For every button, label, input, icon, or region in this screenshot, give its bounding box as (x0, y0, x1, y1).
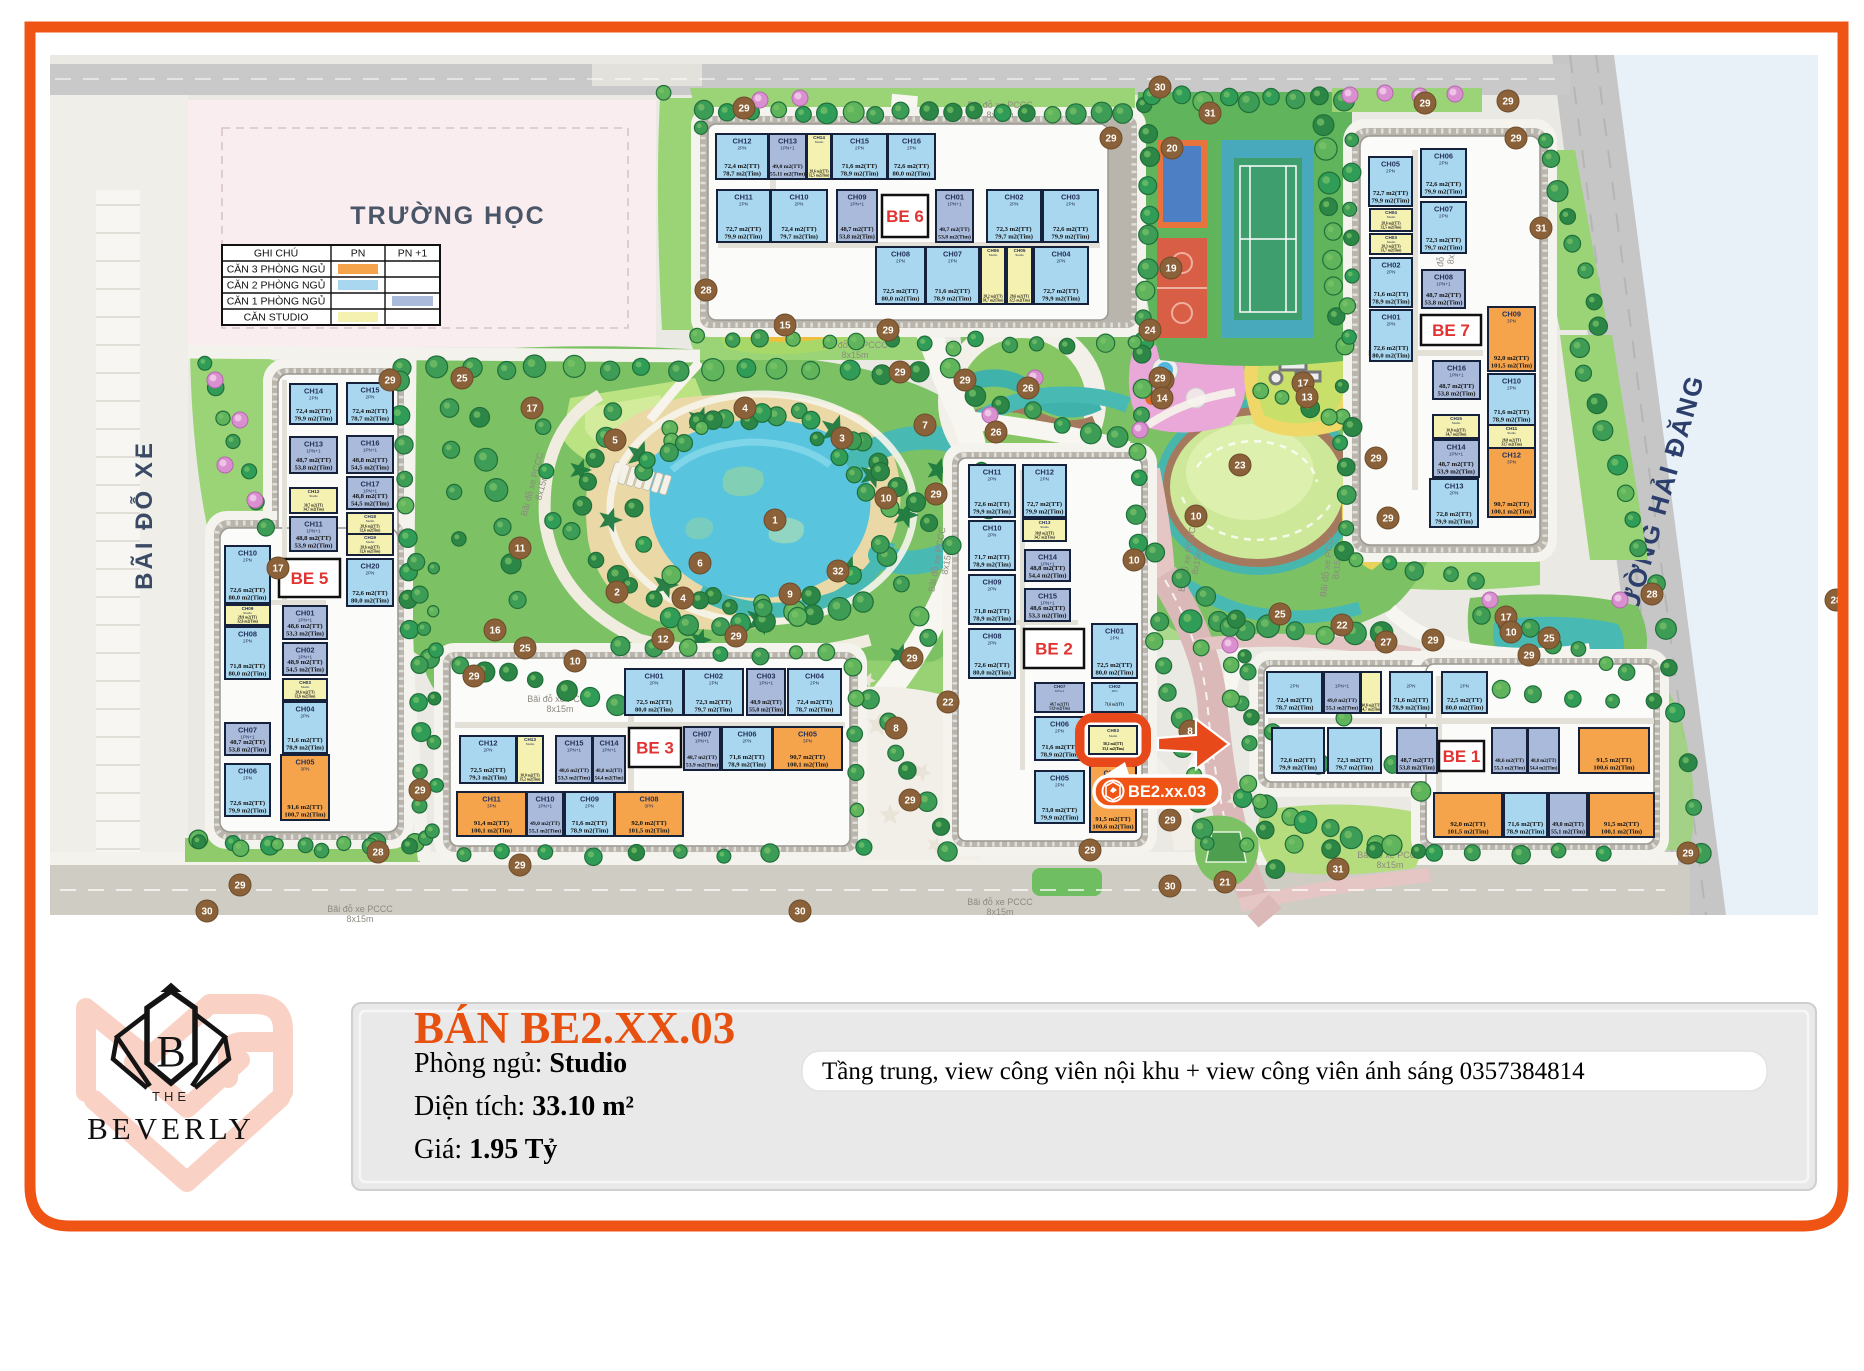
svg-text:78,9 m2(Tim): 78,9 m2(Tim) (973, 562, 1011, 569)
svg-text:72,6 m2(TT): 72,6 m2(TT) (230, 800, 265, 807)
svg-text:CH01: CH01 (1105, 627, 1124, 636)
svg-text:72,7 m2(TT): 72,7 m2(TT) (1027, 501, 1062, 508)
svg-text:CH12: CH12 (479, 739, 498, 748)
svg-text:21: 21 (1219, 878, 1231, 889)
svg-text:CH04: CH04 (1052, 250, 1072, 259)
svg-text:55,0 m2(Tim): 55,0 m2(Tim) (749, 707, 783, 714)
svg-text:1PN+1: 1PN+1 (306, 449, 321, 454)
svg-text:4: 4 (680, 594, 686, 605)
svg-text:79,7 m2(Tim): 79,7 m2(Tim) (695, 707, 733, 714)
svg-text:12: 12 (657, 635, 669, 646)
svg-text:80,0 m2(Tim): 80,0 m2(Tim) (229, 595, 267, 602)
svg-text:71,8 m2(TT): 71,8 m2(TT) (974, 608, 1009, 615)
svg-text:72,8 m2(TT): 72,8 m2(TT) (1436, 511, 1471, 518)
svg-text:71,8 m2(TT): 71,8 m2(TT) (230, 663, 265, 670)
svg-text:CH08: CH08 (983, 632, 1002, 641)
svg-text:72,4 m2(TT): 72,4 m2(TT) (1277, 697, 1312, 704)
svg-text:53,8 m2(Tim): 53,8 m2(Tim) (229, 747, 267, 754)
svg-text:29: 29 (959, 376, 971, 387)
svg-text:80,0 m2(Tim): 80,0 m2(Tim) (351, 598, 389, 605)
svg-text:53,8 m2(Tim): 53,8 m2(Tim) (839, 234, 875, 241)
svg-text:Studio: Studio (1452, 421, 1461, 425)
svg-text:CH08: CH08 (1434, 273, 1453, 282)
svg-text:33,1 m2(Tim): 33,1 m2(Tim) (1102, 747, 1125, 751)
svg-text:Studio: Studio (815, 140, 824, 144)
svg-text:27: 27 (1380, 638, 1392, 649)
svg-text:35,2 m2(Tim): 35,2 m2(Tim) (520, 778, 541, 782)
svg-text:53,9 m2(Tim): 53,9 m2(Tim) (686, 762, 718, 769)
svg-text:10: 10 (569, 657, 581, 668)
svg-text:8x15m: 8x15m (841, 350, 868, 360)
svg-text:53,3 m2(Tim): 53,3 m2(Tim) (1029, 613, 1067, 620)
svg-text:72,3 m2(TT): 72,3 m2(TT) (996, 226, 1031, 233)
svg-text:78,7 m2(Tim): 78,7 m2(Tim) (723, 171, 761, 178)
svg-text:CH10: CH10 (983, 524, 1002, 533)
svg-text:80,0 m2(Tim): 80,0 m2(Tim) (1446, 705, 1484, 712)
svg-text:CH16: CH16 (1447, 364, 1466, 373)
svg-text:2PN: 2PN (896, 259, 905, 264)
svg-text:79,9 m2(Tim): 79,9 m2(Tim) (1041, 815, 1079, 822)
svg-text:48,7 m2(TT): 48,7 m2(TT) (939, 226, 969, 233)
svg-text:2PN: 2PN (1010, 202, 1019, 207)
svg-text:80,0 m2(Tim): 80,0 m2(Tim) (882, 296, 920, 303)
svg-text:BE 3: BE 3 (636, 739, 674, 758)
svg-text:Studio: Studio (366, 540, 375, 544)
svg-text:CH09: CH09 (580, 795, 599, 804)
svg-text:7: 7 (922, 421, 928, 432)
svg-text:72,5 m2(TT): 72,5 m2(TT) (636, 699, 671, 706)
svg-text:79,3 m2(Tim): 79,3 m2(Tim) (469, 775, 507, 782)
svg-text:CH15: CH15 (565, 739, 584, 748)
svg-text:CH11: CH11 (482, 795, 501, 804)
svg-text:28: 28 (372, 848, 384, 859)
svg-text:TRƯỜNG HỌC: TRƯỜNG HỌC (350, 200, 545, 230)
svg-text:BE 1: BE 1 (1443, 747, 1481, 766)
svg-text:13: 13 (1301, 393, 1313, 404)
svg-text:48,7 m2(TT): 48,7 m2(TT) (1401, 757, 1434, 764)
svg-text:1PN+1: 1PN+1 (298, 618, 313, 623)
svg-text:48,8 m2(TT): 48,8 m2(TT) (296, 535, 331, 542)
svg-text:CH01: CH01 (645, 672, 664, 681)
svg-text:71,6 m2(TT): 71,6 m2(TT) (1042, 744, 1077, 751)
svg-text:Bãi đỗ xe PCCC: Bãi đỗ xe PCCC (327, 904, 393, 914)
svg-text:29: 29 (1382, 514, 1394, 525)
svg-text:CH17: CH17 (361, 480, 380, 489)
svg-text:2PN: 2PN (988, 641, 997, 646)
svg-text:1PN+1: 1PN+1 (538, 804, 553, 809)
svg-text:1PN+1: 1PN+1 (780, 146, 795, 151)
svg-text:29: 29 (1370, 454, 1382, 465)
svg-text:CH02: CH02 (296, 646, 315, 655)
svg-text:71,6 m2(TT): 71,6 m2(TT) (572, 820, 607, 827)
svg-text:CH13: CH13 (778, 137, 797, 146)
svg-text:54,5 m2(Tim): 54,5 m2(Tim) (351, 465, 389, 472)
svg-text:29: 29 (1682, 849, 1694, 860)
svg-text:CH11: CH11 (734, 193, 753, 202)
svg-text:3: 3 (839, 434, 845, 445)
svg-text:78,9 m2(Tim): 78,9 m2(Tim) (1041, 752, 1079, 759)
svg-text:17: 17 (272, 564, 284, 575)
svg-text:48,7 m2(TT): 48,7 m2(TT) (841, 226, 874, 233)
svg-text:2PN: 2PN (1460, 684, 1469, 689)
svg-text:29: 29 (234, 881, 246, 892)
svg-text:78,9 m2(Tim): 78,9 m2(Tim) (1507, 829, 1545, 836)
svg-text:71,6 m2(TT): 71,6 m2(TT) (842, 163, 877, 170)
svg-text:32,5 m2(Tim): 32,5 m2(Tim) (1009, 299, 1030, 303)
svg-text:Studio: Studio (301, 685, 310, 689)
svg-text:CH10: CH10 (790, 193, 809, 202)
svg-text:CH03: CH03 (1107, 728, 1119, 733)
svg-text:72,5 m2(TT): 72,5 m2(TT) (883, 288, 918, 295)
svg-text:Studio: Studio (1015, 253, 1024, 257)
svg-text:2PN: 2PN (484, 748, 493, 753)
svg-text:49,0 m2(TT): 49,0 m2(TT) (1552, 821, 1583, 828)
svg-text:CH07: CH07 (238, 726, 257, 735)
svg-text:34,7 m2(Tim): 34,7 m2(Tim) (1034, 536, 1055, 540)
svg-text:48,8 m2(TT): 48,8 m2(TT) (1030, 565, 1065, 572)
svg-text:78,7 m2(Tim): 78,7 m2(Tim) (796, 707, 834, 714)
svg-text:80,0 m2(Tim): 80,0 m2(Tim) (635, 707, 673, 714)
svg-text:73,0 m2(TT): 73,0 m2(TT) (1042, 807, 1077, 814)
svg-text:2PN: 2PN (1439, 214, 1448, 219)
svg-text:Studio: Studio (309, 494, 318, 498)
svg-text:101,5 m2(Tim): 101,5 m2(Tim) (628, 828, 669, 835)
svg-text:29: 29 (1419, 99, 1431, 110)
svg-text:72,4 m2(TT): 72,4 m2(TT) (296, 408, 331, 415)
svg-text:72,4 m2(TT): 72,4 m2(TT) (781, 226, 816, 233)
svg-text:72,5 m2(TT): 72,5 m2(TT) (470, 767, 505, 774)
svg-text:32,5 m2(Tim): 32,5 m2(Tim) (809, 174, 830, 178)
svg-text:CH01: CH01 (296, 609, 315, 618)
svg-text:CH07: CH07 (943, 250, 962, 259)
svg-text:79,7 m2(Tim): 79,7 m2(Tim) (1336, 765, 1374, 772)
svg-text:Studio: Studio (1387, 215, 1396, 219)
svg-text:2PN: 2PN (1450, 491, 1459, 496)
svg-text:2PN: 2PN (795, 202, 804, 207)
svg-text:Studio: Studio (1109, 734, 1118, 738)
svg-text:1PN+1: 1PN+1 (363, 448, 378, 453)
svg-text:71,6 m2(TT): 71,6 m2(TT) (1105, 703, 1125, 707)
svg-text:32,5 m2(Tim): 32,5 m2(Tim) (1381, 226, 1402, 230)
svg-text:71,6 m2(TT): 71,6 m2(TT) (1494, 409, 1529, 416)
svg-text:80,0 m2(Tim): 80,0 m2(Tim) (1096, 670, 1134, 677)
svg-text:29: 29 (882, 326, 894, 337)
svg-text:54,4 m2(Tim): 54,4 m2(Tim) (1029, 573, 1067, 580)
svg-text:100,6 m2(Tim): 100,6 m2(Tim) (1092, 824, 1133, 831)
svg-text:CH10: CH10 (536, 795, 555, 804)
svg-text:CH06: CH06 (738, 730, 757, 739)
svg-text:33,7 m2(Tim): 33,7 m2(Tim) (1501, 443, 1522, 447)
svg-text:30,2 m2(TT): 30,2 m2(TT) (1103, 742, 1124, 746)
svg-text:2PN: 2PN (1387, 322, 1396, 327)
svg-text:3PN: 3PN (803, 739, 812, 744)
svg-text:16: 16 (489, 626, 501, 637)
svg-text:THE: THE (152, 1089, 190, 1104)
svg-text:BE 6: BE 6 (886, 207, 924, 226)
svg-text:CH04: CH04 (805, 672, 825, 681)
svg-text:80,0 m2(Tim): 80,0 m2(Tim) (893, 171, 931, 178)
svg-text:2: 2 (614, 588, 620, 599)
svg-text:53,9 m2(Tim): 53,9 m2(Tim) (295, 543, 333, 550)
svg-text:48,8 m2(TT): 48,8 m2(TT) (352, 457, 387, 464)
svg-text:2PN: 2PN (1407, 684, 1416, 689)
svg-text:28: 28 (1646, 590, 1658, 601)
svg-text:17: 17 (526, 404, 538, 415)
svg-text:CH11: CH11 (304, 520, 323, 529)
svg-text:8: 8 (893, 724, 899, 735)
svg-text:1PN+1: 1PN+1 (695, 739, 710, 744)
svg-text:72,7 m2(TT): 72,7 m2(TT) (1373, 190, 1408, 197)
svg-text:72,6 m2(TT): 72,6 m2(TT) (352, 590, 387, 597)
svg-text:55,1 m2(Tim): 55,1 m2(Tim) (529, 828, 561, 835)
svg-text:53,8 m2(Tim): 53,8 m2(Tim) (1399, 765, 1435, 772)
svg-text:BÃI ĐỖ XE: BÃI ĐỖ XE (129, 440, 158, 590)
svg-text:1PN+1: 1PN+1 (306, 529, 321, 534)
svg-text:8x15m: 8x15m (986, 907, 1013, 917)
svg-text:72,6 m2(TT): 72,6 m2(TT) (230, 587, 265, 594)
svg-text:CH06: CH06 (1434, 152, 1453, 161)
svg-text:CH13: CH13 (1445, 482, 1464, 491)
svg-text:2PN: 2PN (1057, 259, 1066, 264)
svg-text:Phòng ngủ: Studio: Phòng ngủ: Studio (414, 1048, 627, 1079)
svg-text:2PN: 2PN (1290, 684, 1299, 689)
svg-text:53,8 m2(Tim): 53,8 m2(Tim) (295, 465, 333, 472)
svg-text:CH14: CH14 (304, 387, 324, 396)
svg-text:54,5 m2(Tim): 54,5 m2(Tim) (351, 501, 389, 508)
svg-text:78,9 m2(Tim): 78,9 m2(Tim) (934, 296, 972, 303)
svg-text:CH12: CH12 (1502, 451, 1521, 460)
svg-text:29: 29 (906, 654, 918, 665)
svg-text:29: 29 (930, 490, 942, 501)
svg-text:Studio: Studio (989, 253, 998, 257)
svg-text:72,6 m2(TT): 72,6 m2(TT) (974, 662, 1009, 669)
svg-text:79,9 m2(Tim): 79,9 m2(Tim) (725, 234, 763, 241)
svg-text:29: 29 (1510, 134, 1522, 145)
svg-text:CH03: CH03 (1061, 193, 1080, 202)
svg-text:10: 10 (880, 494, 892, 505)
svg-text:71,7 m2(TT): 71,7 m2(TT) (974, 554, 1009, 561)
svg-text:29: 29 (1154, 374, 1166, 385)
svg-text:78,9 m2(Tim): 78,9 m2(Tim) (841, 171, 879, 178)
svg-text:CH09: CH09 (848, 193, 867, 202)
svg-text:100,1 m2(Tim): 100,1 m2(Tim) (471, 828, 512, 835)
svg-text:2PN: 2PN (738, 146, 747, 151)
svg-text:14: 14 (1156, 394, 1168, 405)
svg-text:79,9 m2(Tim): 79,9 m2(Tim) (295, 416, 333, 423)
svg-text:CH12: CH12 (733, 137, 752, 146)
svg-text:79,9 m2(Tim): 79,9 m2(Tim) (1042, 296, 1080, 303)
svg-text:79,9 m2(Tim): 79,9 m2(Tim) (1026, 509, 1064, 516)
svg-text:79,9 m2(Tim): 79,9 m2(Tim) (1279, 765, 1317, 772)
svg-text:48,6 m2(TT): 48,6 m2(TT) (287, 623, 322, 630)
svg-text:25: 25 (1543, 634, 1555, 645)
svg-text:1PN+1: 1PN+1 (850, 202, 865, 207)
svg-text:48,7 m2(TT): 48,7 m2(TT) (687, 754, 717, 761)
svg-text:54,5 m2(Tim): 54,5 m2(Tim) (286, 667, 324, 674)
svg-text:CH07: CH07 (693, 730, 712, 739)
svg-text:29: 29 (894, 368, 906, 379)
svg-text:CH14: CH14 (1447, 443, 1467, 452)
svg-text:48,7 m2(TT): 48,7 m2(TT) (1438, 461, 1473, 468)
svg-text:23: 23 (1234, 461, 1246, 472)
svg-text:30: 30 (794, 907, 806, 918)
svg-text:1PN+1: 1PN+1 (1436, 282, 1451, 287)
svg-text:72,5 m2(TT): 72,5 m2(TT) (1097, 662, 1132, 669)
svg-text:53,8 m2(Tim): 53,8 m2(Tim) (1425, 300, 1463, 307)
svg-text:100,1 m2(Tim): 100,1 m2(Tim) (1491, 509, 1532, 516)
svg-text:53,9 m2(Tim): 53,9 m2(Tim) (1049, 707, 1070, 711)
svg-text:2PN: 2PN (907, 146, 916, 151)
svg-text:28: 28 (700, 286, 712, 297)
svg-text:91,5 m2(TT): 91,5 m2(TT) (1596, 757, 1631, 764)
svg-text:PN +1: PN +1 (398, 248, 428, 260)
svg-text:79,9 m2(Tim): 79,9 m2(Tim) (973, 509, 1011, 516)
svg-text:Tầng trung, view công viên nội: Tầng trung, view công viên nội khu + vie… (822, 1058, 1585, 1085)
svg-text:2PN: 2PN (1387, 270, 1396, 275)
svg-text:CH06: CH06 (1050, 720, 1069, 729)
svg-text:49,0 m2(TT): 49,0 m2(TT) (772, 163, 802, 170)
svg-text:PN: PN (351, 248, 366, 260)
svg-text:72,5 m2(TT): 72,5 m2(TT) (1447, 697, 1482, 704)
svg-text:91,6 m2(TT): 91,6 m2(TT) (287, 804, 322, 811)
svg-text:2PN: 2PN (739, 202, 748, 207)
svg-text:29: 29 (1084, 846, 1096, 857)
svg-text:48,6 m2(TT): 48,6 m2(TT) (1030, 605, 1065, 612)
svg-text:55,11 m2(Tim): 55,11 m2(Tim) (770, 171, 805, 178)
svg-text:78,7 m2(Tim): 78,7 m2(Tim) (1276, 705, 1314, 712)
svg-text:BE 2: BE 2 (1035, 640, 1073, 659)
svg-text:25: 25 (519, 644, 531, 655)
svg-text:91,4 m2(TT): 91,4 m2(TT) (474, 820, 509, 827)
svg-text:Diện tích: 33.10 m²: Diện tích: 33.10 m² (414, 1091, 634, 1122)
svg-text:80,0 m2(Tim): 80,0 m2(Tim) (1372, 353, 1409, 360)
svg-text:34,7 m2(Tim): 34,7 m2(Tim) (1361, 708, 1382, 712)
svg-text:2PN: 2PN (366, 395, 375, 400)
svg-text:3PN: 3PN (1507, 460, 1516, 465)
svg-text:CĂN STUDIO: CĂN STUDIO (244, 311, 309, 324)
svg-text:48,9 m2(TT): 48,9 m2(TT) (287, 659, 322, 666)
svg-text:48,8 m2(TT): 48,8 m2(TT) (1531, 759, 1557, 764)
svg-text:53,3 m2(Tim): 53,3 m2(Tim) (286, 631, 324, 638)
svg-text:79,7 m2(Tim): 79,7 m2(Tim) (780, 234, 818, 241)
svg-text:CH02: CH02 (1382, 261, 1401, 270)
svg-text:29: 29 (1502, 97, 1514, 108)
svg-text:15: 15 (779, 321, 791, 332)
svg-text:2PN: 2PN (1040, 477, 1049, 482)
svg-text:2PN: 2PN (366, 571, 375, 576)
svg-text:CH09: CH09 (983, 578, 1002, 587)
svg-text:29: 29 (1105, 134, 1117, 145)
svg-text:2PN: 2PN (1112, 689, 1118, 693)
svg-text:11: 11 (515, 544, 526, 555)
svg-text:78,9 m2(Tim): 78,9 m2(Tim) (1372, 299, 1409, 306)
svg-text:Studio: Studio (1507, 431, 1516, 435)
svg-text:CH05: CH05 (1381, 160, 1400, 169)
svg-text:71,6 m2(TT): 71,6 m2(TT) (935, 288, 970, 295)
svg-text:29: 29 (1427, 636, 1439, 647)
svg-text:Studio: Studio (526, 742, 535, 746)
svg-text:4: 4 (742, 404, 748, 415)
svg-text:90,7 m2(TT): 90,7 m2(TT) (1494, 501, 1529, 508)
svg-text:10: 10 (1128, 556, 1140, 567)
svg-text:CH05: CH05 (798, 730, 817, 739)
svg-text:91,5 m2(TT): 91,5 m2(TT) (1095, 816, 1130, 823)
svg-text:32,6 m2(Tim): 32,6 m2(Tim) (360, 550, 381, 554)
svg-text:29: 29 (730, 632, 742, 643)
svg-text:2PN: 2PN (650, 681, 659, 686)
svg-text:31: 31 (1535, 224, 1547, 235)
svg-text:3PN: 3PN (487, 804, 496, 809)
svg-text:72,3 m2(TT): 72,3 m2(TT) (1426, 237, 1461, 244)
svg-text:Studio: Studio (1387, 240, 1396, 244)
svg-text:48,8 m2(TT): 48,8 m2(TT) (352, 493, 387, 500)
svg-text:10: 10 (1190, 512, 1202, 523)
svg-text:1PN+1: 1PN+1 (1055, 689, 1065, 693)
svg-text:31: 31 (1332, 865, 1344, 876)
svg-text:79,9 m2(Tim): 79,9 m2(Tim) (1052, 234, 1090, 241)
svg-text:3PN: 3PN (301, 767, 310, 772)
svg-text:32,6 m2(Tim): 32,6 m2(Tim) (295, 695, 316, 699)
svg-text:53,9 m2(Tim): 53,9 m2(Tim) (1437, 469, 1475, 476)
svg-text:2PN: 2PN (1055, 783, 1064, 788)
svg-text:48,6 m2(TT): 48,6 m2(TT) (559, 767, 589, 774)
svg-text:48,7 m2(TT): 48,7 m2(TT) (296, 457, 331, 464)
svg-text:CĂN 2 PHÒNG NGỦ: CĂN 2 PHÒNG NGỦ (227, 279, 326, 292)
svg-text:72,6 m2(TT): 72,6 m2(TT) (1374, 345, 1409, 352)
svg-text:CH04: CH04 (296, 705, 316, 714)
svg-text:CH08: CH08 (640, 795, 659, 804)
svg-text:CH16: CH16 (902, 137, 921, 146)
svg-text:CH15: CH15 (850, 137, 869, 146)
svg-text:1PN+1: 1PN+1 (567, 748, 582, 753)
svg-text:100,1 m2(Tim): 100,1 m2(Tim) (787, 762, 828, 769)
svg-text:CĂN 1 PHÒNG NGỦ: CĂN 1 PHÒNG NGỦ (227, 295, 326, 308)
svg-text:54,4 m2(Tim): 54,4 m2(Tim) (1530, 767, 1558, 772)
svg-text:BÁN BE2.XX.03: BÁN BE2.XX.03 (414, 1003, 735, 1053)
svg-text:29: 29 (468, 672, 480, 683)
svg-text:79,9 m2(Tim): 79,9 m2(Tim) (1425, 189, 1463, 196)
svg-text:1: 1 (772, 516, 778, 527)
svg-text:3PN: 3PN (1507, 319, 1516, 324)
svg-text:72,6 m2(TT): 72,6 m2(TT) (1053, 226, 1088, 233)
svg-text:78,7 m2(Tim): 78,7 m2(Tim) (351, 416, 389, 423)
svg-text:CH06: CH06 (238, 767, 257, 776)
svg-text:2PN: 2PN (243, 776, 252, 781)
svg-text:Studio: Studio (1040, 525, 1049, 529)
svg-text:CH05: CH05 (296, 758, 315, 767)
svg-text:55,3 m2(Tim): 55,3 m2(Tim) (1494, 765, 1525, 772)
svg-text:78,9 m2(Tim): 78,9 m2(Tim) (1392, 705, 1429, 712)
svg-text:22: 22 (1336, 621, 1348, 632)
svg-text:2PN: 2PN (243, 558, 252, 563)
svg-text:80,0 m2(Tim): 80,0 m2(Tim) (973, 670, 1011, 677)
svg-text:B: B (156, 1027, 185, 1076)
svg-text:25: 25 (1274, 610, 1286, 621)
svg-text:2PN: 2PN (243, 639, 252, 644)
svg-text:CH08: CH08 (891, 250, 910, 259)
svg-text:49,0 m2(TT): 49,0 m2(TT) (530, 820, 560, 827)
svg-text:31: 31 (1204, 109, 1216, 120)
svg-text:48,7 m2(TT): 48,7 m2(TT) (1426, 292, 1461, 299)
svg-text:32,6 m2(Tim): 32,6 m2(Tim) (360, 529, 381, 533)
svg-text:9: 9 (787, 590, 793, 601)
svg-text:55,1 m2(Tim): 55,1 m2(Tim) (1326, 705, 1358, 712)
svg-text:2PN: 2PN (988, 587, 997, 592)
svg-text:78,9 m2(Tim): 78,9 m2(Tim) (728, 762, 766, 769)
svg-text:CH15: CH15 (361, 386, 380, 395)
svg-text:29: 29 (514, 861, 526, 872)
svg-text:Studio: Studio (366, 519, 375, 523)
